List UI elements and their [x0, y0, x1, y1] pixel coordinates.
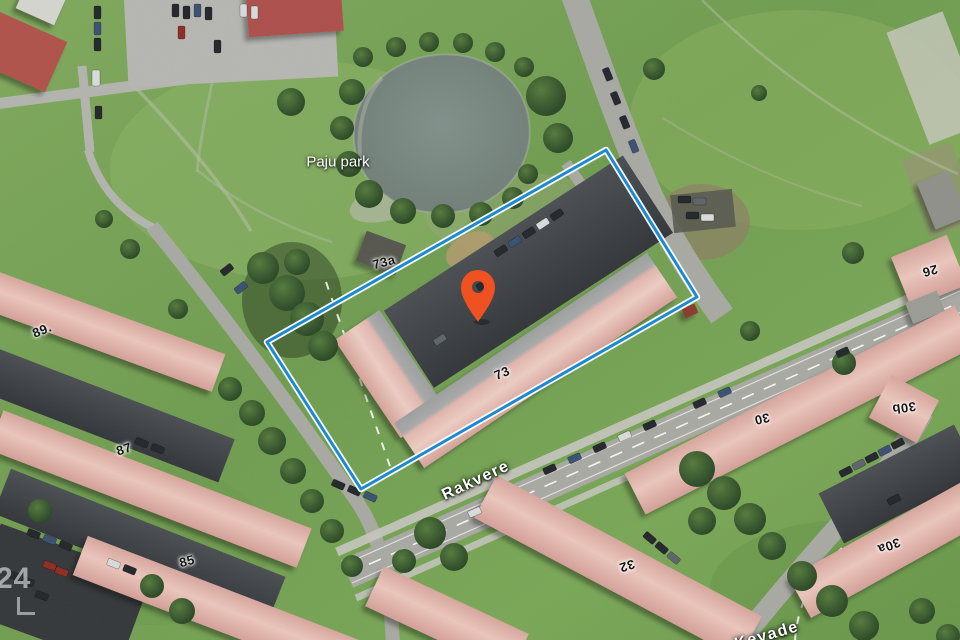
watermark-24-logo: 24 [0, 564, 35, 615]
satellite-map[interactable]: Paju park Rakvere Kevade 73a 73 89. 87 8… [0, 0, 960, 640]
pin-icon[interactable] [461, 270, 495, 322]
location-pin[interactable] [461, 270, 495, 325]
map-overlay [0, 0, 960, 640]
watermark-text: 24 [0, 562, 31, 595]
watermark-bracket [17, 597, 35, 615]
pin-shadow [474, 319, 490, 325]
